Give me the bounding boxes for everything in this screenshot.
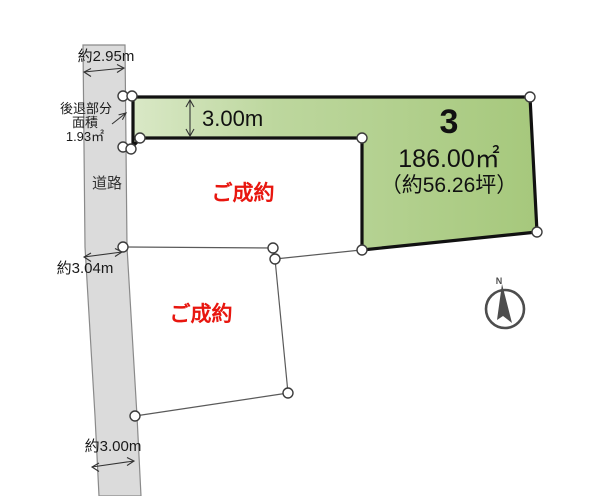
lot-plan-drawing: 約2.95m 後退部分 面積 1.93㎡ 道路 約3.04m 約3.00m 3.…: [0, 0, 600, 496]
parcel-boundary-lines: [123, 247, 361, 416]
lot3-area-tsubo: （約56.26坪）: [381, 174, 518, 197]
setback-note-line3: 1.93㎡: [66, 129, 104, 144]
compass-north-label: N: [496, 276, 503, 286]
road-label: 道路: [92, 175, 122, 192]
road-mid-width-label: 約3.04m: [57, 260, 114, 277]
lot3-strip-depth-label: 3.00m: [202, 106, 263, 131]
road-bottom-width-label: 約3.00m: [85, 438, 142, 455]
setback-note-line2: 面積: [72, 115, 98, 130]
lot3-number: 3: [440, 103, 459, 141]
lot-plan-canvas: 約2.95m 後退部分 面積 1.93㎡ 道路 約3.04m 約3.00m 3.…: [0, 0, 600, 496]
lot3-area-sqm: 186.00㎡: [398, 145, 499, 173]
compass-icon: N: [486, 276, 524, 328]
sold-lot-1-label: ご成約: [212, 181, 275, 205]
sold-lot-2-label: ご成約: [170, 302, 233, 326]
setback-note-line1: 後退部分: [60, 101, 112, 116]
road-top-width-label: 約2.95m: [78, 48, 135, 65]
